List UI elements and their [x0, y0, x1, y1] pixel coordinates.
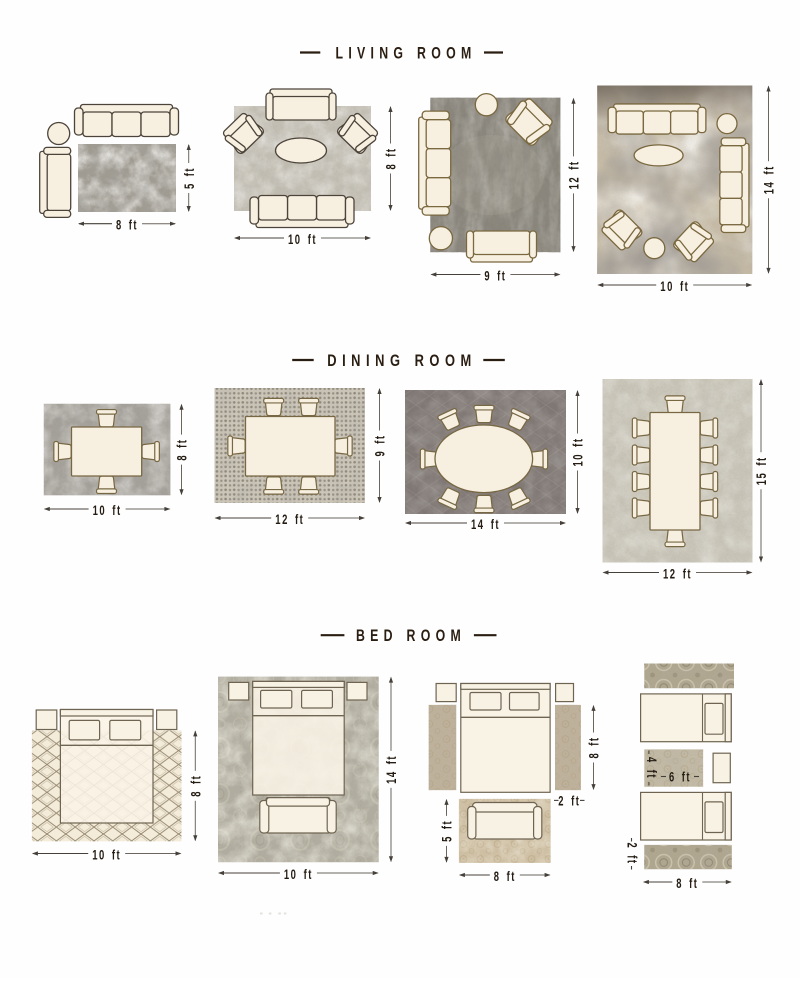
svg-text:6 ft: 6 ft [669, 768, 691, 784]
svg-text:5 ft: 5 ft [181, 167, 197, 189]
svg-text:8 ft: 8 ft [116, 217, 138, 233]
svg-text:10 ft: 10 ft [660, 278, 689, 294]
svg-text:12 ft: 12 ft [566, 160, 582, 189]
svg-text:10 ft: 10 ft [570, 438, 586, 467]
svg-text:8 ft: 8 ft [188, 775, 204, 797]
svg-text:8 ft: 8 ft [586, 737, 602, 759]
svg-text:15 ft: 15 ft [753, 456, 769, 485]
svg-text:8 ft: 8 ft [174, 439, 190, 461]
svg-text:10 ft: 10 ft [284, 866, 313, 882]
svg-text:14 ft: 14 ft [471, 516, 500, 532]
svg-text:8 ft: 8 ft [494, 868, 516, 884]
svg-text:DINING ROOM: DINING ROOM [327, 352, 477, 370]
svg-text:10 ft: 10 ft [92, 847, 121, 863]
svg-text:BED ROOM: BED ROOM [356, 627, 466, 645]
svg-text:2 ft: 2 ft [625, 843, 641, 865]
svg-text:5 ft: 5 ft [439, 820, 455, 842]
svg-text:12 ft: 12 ft [663, 566, 692, 582]
svg-text:8 ft: 8 ft [676, 875, 698, 891]
svg-text:LIVING ROOM: LIVING ROOM [336, 44, 477, 62]
svg-text:4 ft: 4 ft [644, 757, 660, 779]
svg-text:12 ft: 12 ft [275, 511, 304, 527]
svg-text:8 ft: 8 ft [383, 148, 399, 170]
svg-text:9 ft: 9 ft [372, 435, 388, 457]
svg-text:2 ft: 2 ft [558, 793, 580, 809]
svg-text:14 ft: 14 ft [383, 755, 399, 784]
svg-text:14 ft: 14 ft [761, 165, 777, 194]
svg-text:10 ft: 10 ft [93, 502, 122, 518]
svg-text:10 ft: 10 ft [288, 231, 317, 247]
svg-text:9 ft: 9 ft [484, 268, 506, 284]
